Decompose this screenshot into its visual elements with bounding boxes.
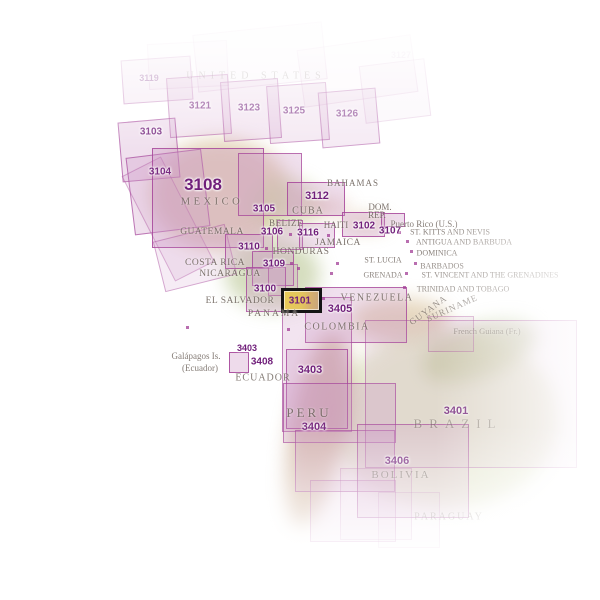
region-label-3112[interactable]: 3112	[305, 190, 329, 202]
region-label-3121[interactable]: 3121	[189, 101, 211, 112]
region-label-3123[interactable]: 3123	[238, 103, 260, 114]
region-label-3106[interactable]: 3106	[261, 227, 283, 238]
place-label-ecuador: ECUADOR	[235, 373, 290, 384]
region-label-3403[interactable]: 3403	[237, 343, 257, 353]
highlighted-region-label[interactable]: 3101	[289, 295, 311, 306]
place-label-nicaragua: NICARAGUA	[199, 269, 261, 279]
region-label-3108[interactable]: 3108	[184, 175, 222, 195]
region-label-3103[interactable]: 3103	[140, 127, 162, 138]
place-label-paraguay: PARAGUAY	[414, 512, 484, 523]
place-label-united-states: UNITED STATES	[186, 71, 325, 82]
place-label-barbados: BARBADOS	[420, 262, 464, 271]
region-label-3405[interactable]: 3405	[328, 303, 352, 315]
region-label-3104[interactable]: 3104	[149, 167, 171, 178]
region-label-3126[interactable]: 3126	[336, 109, 358, 120]
region-label-3105[interactable]: 3105	[253, 204, 275, 215]
place-label-honduras: HONDURAS	[273, 247, 330, 257]
place-label-grenada: GRENADA	[363, 271, 402, 280]
region-label-3102[interactable]: 3102	[353, 221, 375, 232]
place-label-st-vincent-and-the-grenadines: ST. VINCENT AND THE GRENADINES	[422, 271, 559, 280]
place-label-haiti: HAITI	[324, 220, 349, 230]
place-label-costa-rica: COSTA RICA	[185, 258, 245, 268]
place-label-brazil: BRAZIL	[414, 416, 503, 432]
region-label-3403[interactable]: 3403	[298, 364, 322, 376]
place-label-peru: PERU	[286, 405, 331, 421]
place-label-trinidad-and-tobago: TRINIDAD AND TOBAGO	[417, 285, 510, 294]
region-label-3109[interactable]: 3109	[263, 259, 285, 270]
place-label-cuba: CUBA	[292, 206, 324, 217]
place-label-dominica: DOMINICA	[417, 249, 458, 258]
place-label-bahamas: BAHAMAS	[327, 178, 379, 188]
place-label-ecuador: (Ecuador)	[182, 363, 218, 373]
place-label-colombia: COLOMBIA	[304, 322, 369, 333]
place-label-mexico: MEXICO	[181, 197, 243, 208]
region-label-3125[interactable]: 3125	[283, 106, 305, 117]
place-label-panama: PANAMA	[248, 309, 300, 319]
place-label-antigua-and-barbuda: ANTIGUA AND BARBUDA	[416, 238, 512, 247]
place-label-venezuela: VENEZUELA	[341, 293, 414, 304]
region-label-3404[interactable]: 3404	[302, 421, 326, 433]
region-label-3119[interactable]: 3119	[139, 73, 159, 83]
region-label-3100[interactable]: 3100	[254, 284, 276, 295]
place-label-guatemala: GUATEMALA	[180, 227, 244, 237]
map-index: 3101311931213123312531263127310331043108…	[0, 0, 600, 600]
map-labels: 3101311931213123312531263127310331043108…	[0, 0, 600, 600]
place-label-st-kitts-and-nevis: ST. KITTS AND NEVIS	[410, 228, 490, 237]
place-label-st-lucia: ST. LUCIA	[364, 256, 401, 265]
place-label-gal-pagos-is: Galápagos Is.	[172, 351, 221, 361]
place-label-bolivia: BOLIVIA	[371, 469, 430, 481]
place-label-french-guiana-fr: French Guiana (Fr.)	[453, 326, 520, 336]
region-label-3110[interactable]: 3110	[238, 242, 260, 253]
region-label-3408[interactable]: 3408	[251, 357, 273, 368]
place-label-el-salvador: EL SALVADOR	[206, 296, 275, 306]
place-label-rep: REP.	[368, 210, 386, 220]
place-label-belize: BELIZE	[269, 218, 303, 228]
region-label-3116[interactable]: 3116	[297, 228, 319, 239]
region-label-3406[interactable]: 3406	[385, 455, 409, 467]
region-label-3127[interactable]: 3127	[391, 50, 411, 60]
